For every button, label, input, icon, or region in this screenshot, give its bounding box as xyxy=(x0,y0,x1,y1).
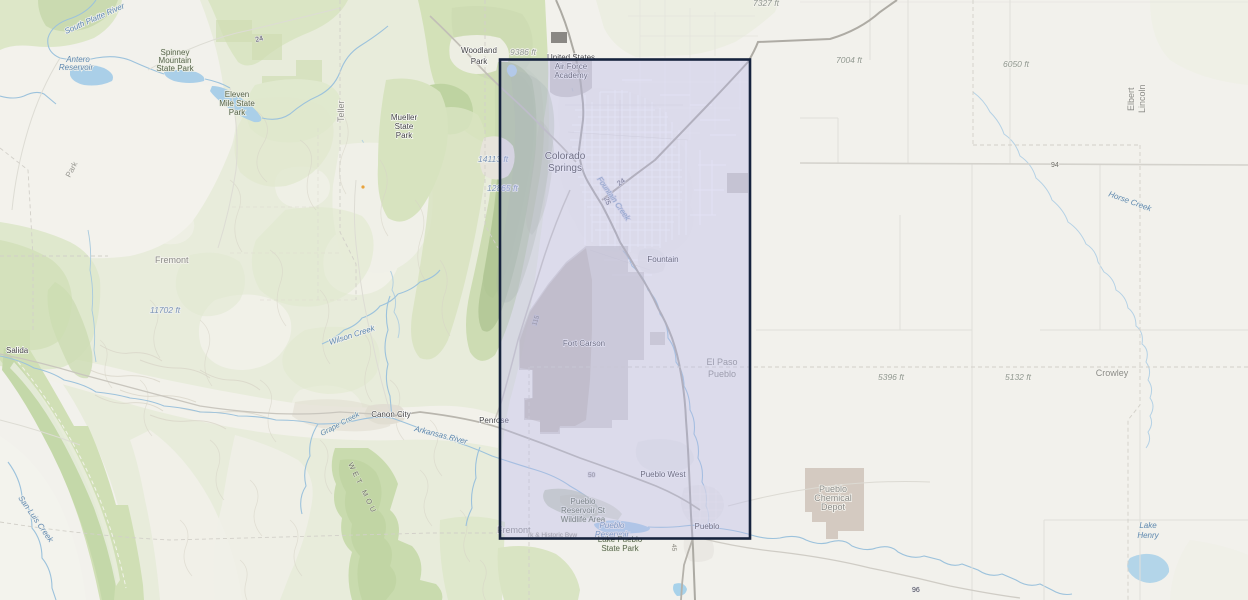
svg-text:Lake: Lake xyxy=(1139,521,1157,530)
svg-text:45: 45 xyxy=(670,544,677,552)
svg-text:Mile State: Mile State xyxy=(219,99,255,108)
svg-text:Park: Park xyxy=(229,108,246,117)
svg-text:Elbert: Elbert xyxy=(1126,87,1136,111)
svg-text:Salida: Salida xyxy=(6,346,29,355)
svg-text:5132 ft: 5132 ft xyxy=(1005,372,1032,382)
svg-text:9386 ft: 9386 ft xyxy=(510,47,537,57)
svg-text:Crowley: Crowley xyxy=(1096,368,1129,378)
svg-text:Woodland: Woodland xyxy=(461,46,497,55)
svg-text:Fremont: Fremont xyxy=(155,255,189,265)
svg-text:State Park: State Park xyxy=(601,544,639,553)
svg-text:6050 ft: 6050 ft xyxy=(1003,59,1030,69)
svg-text:Reservoir: Reservoir xyxy=(59,63,94,72)
svg-text:Park: Park xyxy=(471,57,488,66)
svg-text:Mueller: Mueller xyxy=(391,113,418,122)
svg-text:Park: Park xyxy=(396,131,413,140)
svg-text:Eleven: Eleven xyxy=(225,90,249,99)
svg-text:Canon City: Canon City xyxy=(371,410,411,419)
svg-text:96: 96 xyxy=(912,587,920,594)
svg-text:State Park: State Park xyxy=(156,64,194,73)
svg-text:Henry: Henry xyxy=(1137,531,1159,540)
svg-text:Lincoln: Lincoln xyxy=(1137,84,1147,113)
svg-text:Teller: Teller xyxy=(336,100,346,122)
svg-text:State: State xyxy=(395,122,414,131)
svg-text:11702 ft: 11702 ft xyxy=(150,305,181,315)
svg-text:94: 94 xyxy=(1051,162,1059,169)
svg-text:7327 ft: 7327 ft xyxy=(753,0,780,8)
svg-text:7004 ft: 7004 ft xyxy=(836,55,863,65)
svg-text:Depot: Depot xyxy=(821,502,846,512)
svg-text:5396 ft: 5396 ft xyxy=(878,372,905,382)
